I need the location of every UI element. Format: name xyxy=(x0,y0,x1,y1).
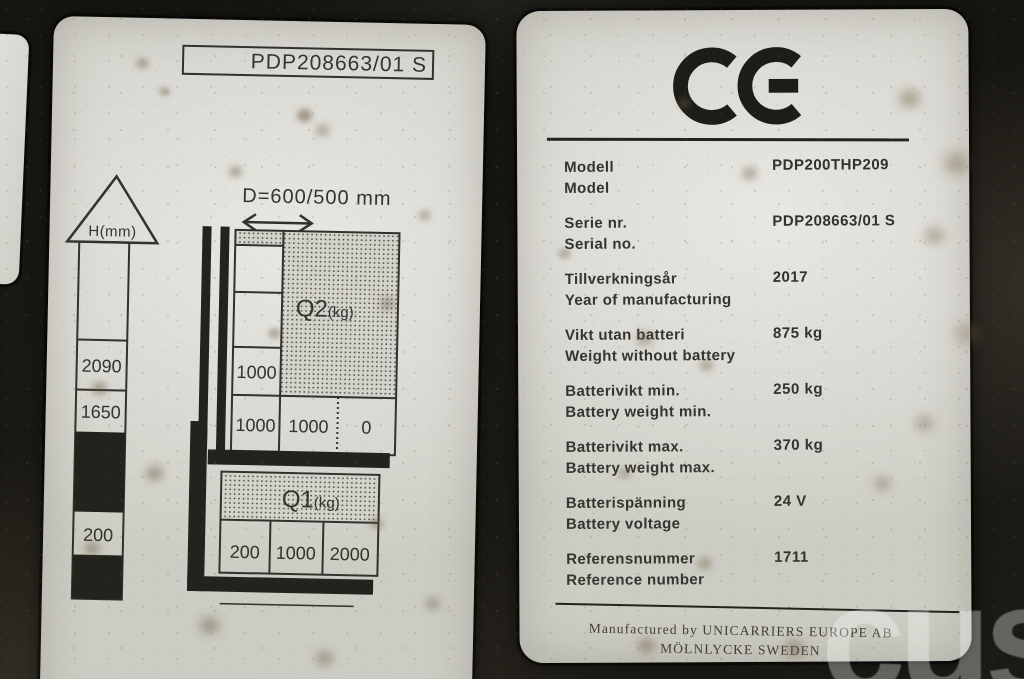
spec-label-sv: Tillverkningsår xyxy=(565,267,954,290)
spec-label-sv: Vikt utan batteri xyxy=(565,323,954,346)
spec-label-en: Model xyxy=(564,176,953,199)
spec-label-sv: Batterispänning xyxy=(566,491,955,514)
height-value-200: 200 xyxy=(83,525,113,546)
spec-row: Serie nr.Serial no.PDP208663/01 S xyxy=(564,211,953,269)
spec-value: PDP208663/01 S xyxy=(772,212,895,230)
spec-row: Batterivikt max.Battery weight max.370 k… xyxy=(566,435,955,493)
spec-label-en: Year of manufacturing xyxy=(565,288,954,311)
q2-cell: 1000 xyxy=(235,415,275,436)
spec-value: 250 kg xyxy=(773,381,823,398)
header-divider xyxy=(547,138,909,141)
spec-row: BatterispänningBattery voltage24 V xyxy=(566,491,955,549)
serial-number-box: PDP208663/01 S xyxy=(183,46,434,79)
q2-cell: 1000 xyxy=(236,362,276,383)
spec-label-en: Serial no. xyxy=(564,232,953,255)
fork-spacing-label: D=600/500 mm xyxy=(242,185,392,210)
q2-cell: 0 xyxy=(361,418,371,438)
capacity-diagram: PDP208663/01 S H(mm) 2090 1650 200 xyxy=(39,16,486,679)
adjacent-plate-fragment xyxy=(0,33,29,285)
spec-value: 370 kg xyxy=(774,437,824,454)
manufacturer-block: Manufactured by UNICARRIERS EUROPE AB MÖ… xyxy=(545,618,936,662)
spec-rows: ModellModelPDP200THP209Serie nr.Serial n… xyxy=(564,155,955,605)
q1-cell: 200 xyxy=(230,542,260,563)
height-symbol-label: H(mm) xyxy=(88,223,137,241)
mast-bars xyxy=(198,226,230,451)
capacity-plate: PDP208663/01 S H(mm) 2090 1650 200 xyxy=(39,16,486,679)
q2-cell: 1000 xyxy=(288,416,328,437)
spec-label-en: Battery voltage xyxy=(566,512,955,535)
serial-number-text: PDP208663/01 S xyxy=(251,50,428,77)
height-value-1650: 1650 xyxy=(80,402,120,423)
spec-row: ReferensnummerReference number1711 xyxy=(566,547,955,605)
spec-label-en: Reference number xyxy=(566,568,955,591)
height-value-2090: 2090 xyxy=(81,356,121,377)
spec-row: ModellModelPDP200THP209 xyxy=(564,155,953,213)
baseline-rule xyxy=(220,604,354,607)
spec-value: 2017 xyxy=(773,269,808,286)
q1-capacity-table: Q1(kg) 200 1000 2000 xyxy=(219,472,379,576)
spec-label-sv: Referensnummer xyxy=(566,547,955,570)
spec-row: TillverkningsårYear of manufacturing2017 xyxy=(565,267,954,325)
q2-capacity-table: Q2(kg) 1000 1000 1000 0 xyxy=(231,230,400,455)
spec-plate: ModellModelPDP200THP209Serie nr.Serial n… xyxy=(516,9,971,663)
dirt-stains xyxy=(0,0,9,7)
spec-row: Batterivikt min.Battery weight min.250 k… xyxy=(565,379,954,437)
q1-cell: 2000 xyxy=(330,544,370,565)
dimension-arrow-icon xyxy=(244,214,312,231)
spec-label-sv: Batterivikt max. xyxy=(566,435,955,458)
spec-value: 1711 xyxy=(774,549,809,566)
spec-value: PDP200THP209 xyxy=(772,156,889,174)
q1-cell: 1000 xyxy=(276,543,316,564)
spec-row: Vikt utan batteriWeight without battery8… xyxy=(565,323,954,381)
height-triangle: H(mm) xyxy=(67,175,158,243)
photo-stage: PDP208663/01 S H(mm) 2090 1650 200 xyxy=(0,0,1024,679)
spec-label-en: Battery weight min. xyxy=(565,400,954,423)
spec-label-en: Battery weight max. xyxy=(566,456,955,479)
spec-label-sv: Modell xyxy=(564,155,953,178)
footer-divider xyxy=(555,603,959,613)
spec-value: 875 kg xyxy=(773,325,823,342)
spec-label-en: Weight without battery xyxy=(565,344,954,367)
spec-value: 24 V xyxy=(774,493,807,510)
ce-mark-icon xyxy=(664,40,804,133)
spec-label-sv: Batterivikt min. xyxy=(565,379,954,402)
